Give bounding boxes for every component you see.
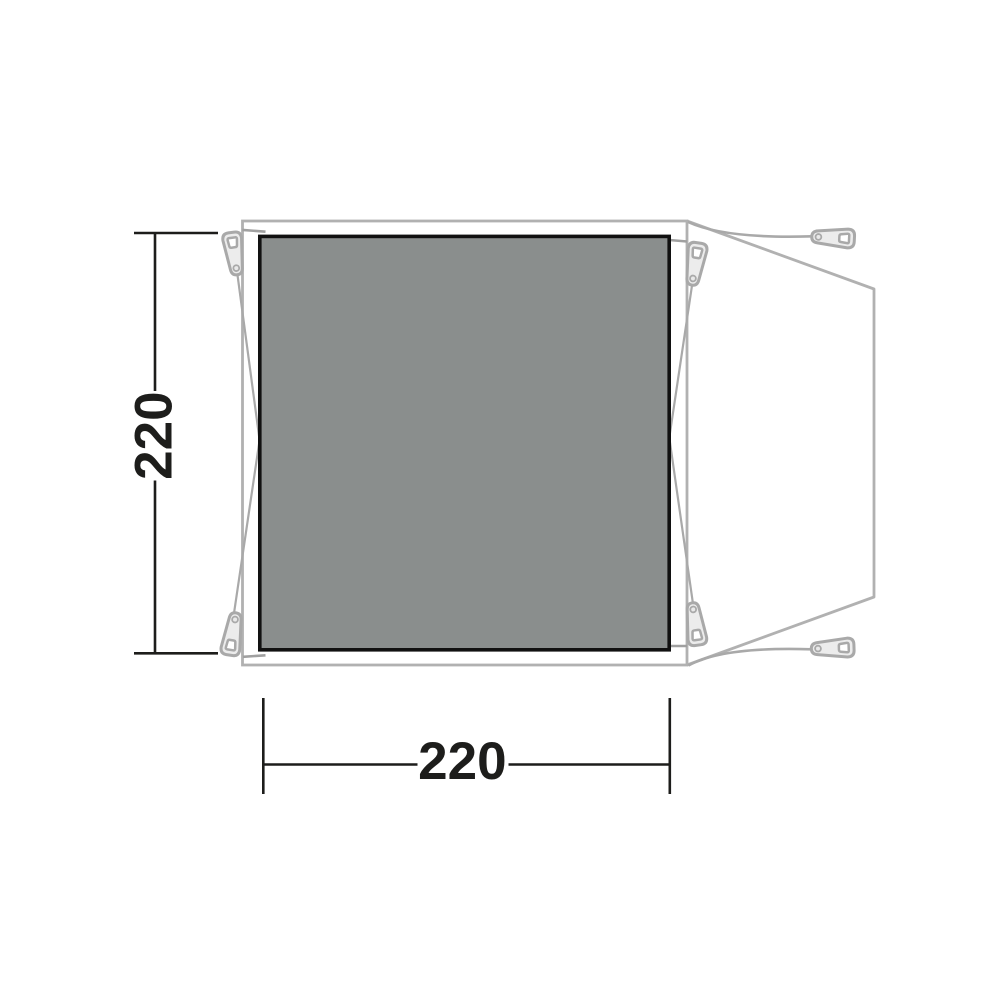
svg-text:220: 220 [418, 732, 506, 791]
svg-text:220: 220 [124, 391, 183, 479]
